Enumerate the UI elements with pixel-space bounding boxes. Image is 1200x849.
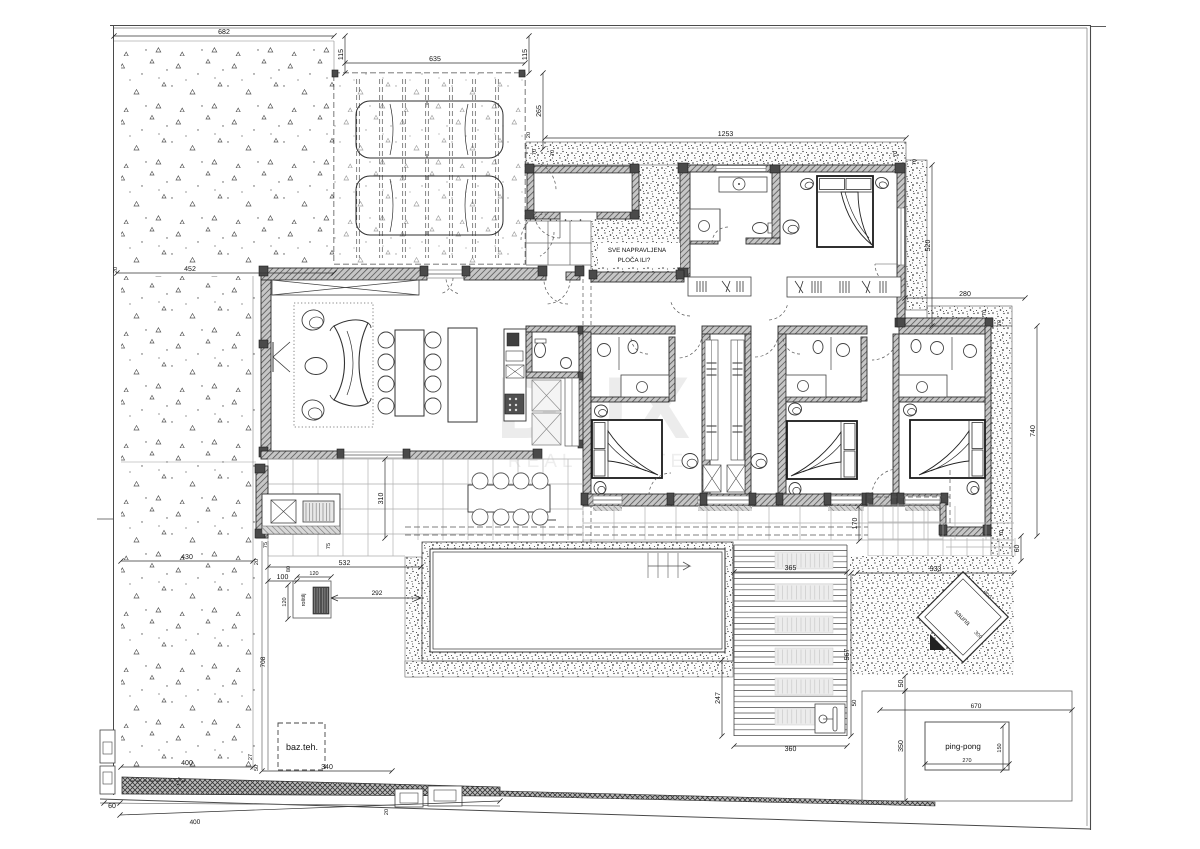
svg-text:70: 70 (893, 151, 899, 157)
svg-text:360: 360 (785, 746, 797, 753)
svg-text:70: 70 (982, 310, 988, 316)
svg-text:SVE NAPRAVLJENA: SVE NAPRAVLJENA (608, 247, 667, 254)
svg-text:310: 310 (378, 493, 385, 505)
svg-text:baz.teh.: baz.teh. (286, 742, 318, 752)
svg-text:80: 80 (286, 566, 292, 572)
svg-text:75: 75 (263, 542, 269, 548)
svg-text:400: 400 (189, 819, 200, 826)
svg-text:70: 70 (532, 149, 538, 155)
svg-text:350: 350 (898, 740, 905, 752)
svg-text:20: 20 (384, 809, 390, 815)
svg-text:567: 567 (844, 649, 851, 661)
svg-text:533: 533 (930, 566, 942, 573)
svg-text:27: 27 (248, 754, 254, 760)
svg-text:292: 292 (372, 590, 383, 597)
svg-text:20: 20 (526, 132, 532, 138)
svg-text:60: 60 (1014, 545, 1021, 553)
svg-text:532: 532 (339, 560, 351, 567)
svg-text:170: 170 (852, 518, 859, 530)
svg-text:50: 50 (851, 699, 858, 706)
svg-text:50: 50 (898, 680, 905, 688)
svg-text:1253: 1253 (718, 131, 734, 138)
svg-text:115: 115 (522, 49, 529, 60)
svg-text:520: 520 (925, 240, 932, 252)
svg-text:340: 340 (321, 764, 333, 771)
svg-text:400: 400 (181, 760, 193, 767)
svg-text:247: 247 (715, 692, 722, 704)
svg-text:20: 20 (113, 267, 119, 273)
svg-text:365: 365 (785, 565, 797, 572)
svg-text:20: 20 (254, 559, 260, 565)
svg-text:70: 70 (999, 530, 1005, 536)
svg-text:740: 740 (1030, 425, 1037, 437)
svg-text:270: 270 (962, 758, 971, 764)
svg-text:120: 120 (282, 597, 288, 606)
svg-text:50: 50 (254, 765, 260, 771)
svg-text:70: 70 (912, 159, 918, 165)
svg-text:635: 635 (429, 56, 441, 63)
svg-text:265: 265 (536, 105, 543, 117)
svg-text:708: 708 (260, 656, 267, 667)
svg-text:75: 75 (326, 543, 332, 549)
svg-text:280: 280 (959, 291, 971, 298)
svg-text:ping-pong: ping-pong (945, 742, 981, 751)
svg-text:70: 70 (997, 320, 1003, 326)
svg-text:452: 452 (184, 266, 196, 273)
svg-text:115: 115 (338, 49, 345, 60)
svg-text:120: 120 (309, 571, 318, 577)
svg-text:roštilj: roštilj (301, 594, 307, 607)
svg-text:60: 60 (108, 803, 116, 810)
svg-text:PLOČA ILI?: PLOČA ILI? (618, 256, 651, 264)
svg-text:670: 670 (971, 703, 982, 710)
svg-text:150: 150 (997, 743, 1003, 752)
svg-text:100: 100 (277, 574, 289, 581)
svg-text:430: 430 (181, 554, 193, 561)
svg-text:70: 70 (550, 150, 556, 156)
svg-text:682: 682 (218, 29, 230, 36)
